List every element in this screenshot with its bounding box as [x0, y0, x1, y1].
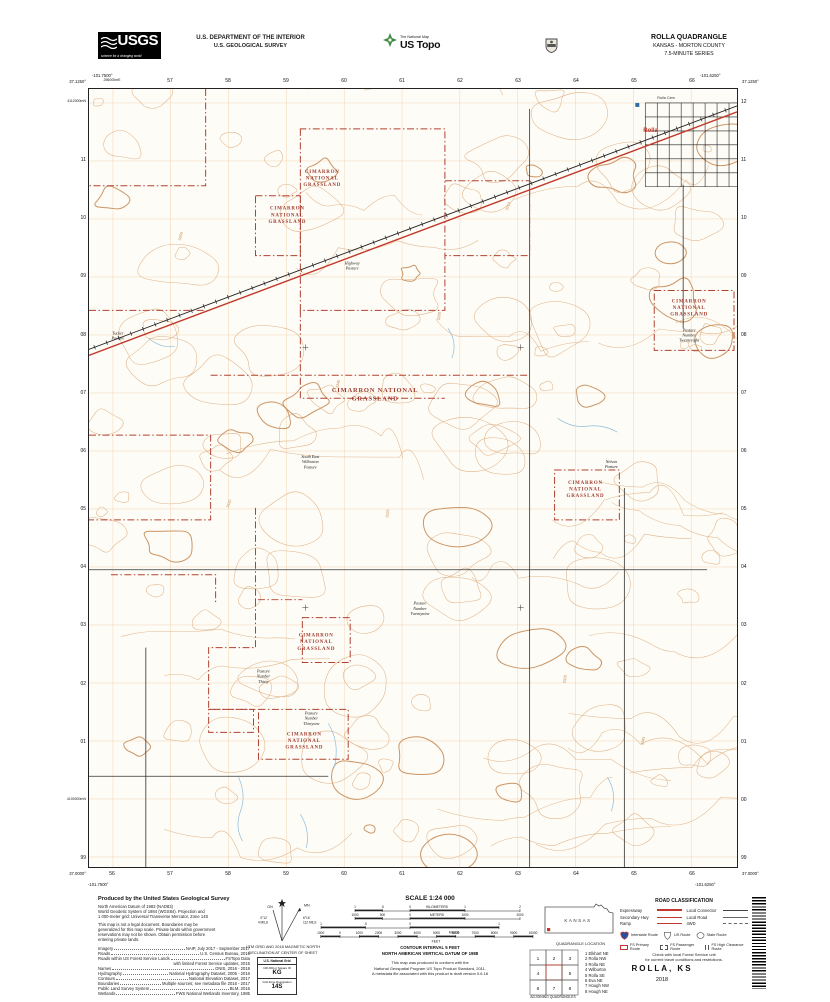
grid-label: 11	[56, 157, 86, 163]
legal-notes: This map is not a legal document. Bounda…	[98, 922, 250, 942]
note-line: entering private lands.	[98, 937, 250, 942]
scale-bar-kilometers: 1.5012KILOMETERS	[354, 905, 521, 912]
fs-primary-label: FS Primary Route	[630, 943, 655, 951]
contour-layer	[89, 89, 737, 867]
grid-label: 64	[561, 871, 591, 877]
usgs-logo-text: USGS	[117, 32, 158, 49]
road-line-sample	[723, 923, 748, 924]
grid-label: 58	[213, 871, 243, 877]
pasture-label: PastureNumberThirtyone	[303, 710, 319, 725]
vertical-datum-note: NORTH AMERICAN VERTICAL DATUM OF 1988	[310, 951, 550, 956]
gn-degrees: 0°12´	[260, 916, 268, 920]
gn-mils: 4 MILS	[258, 921, 268, 925]
svg-text:8000: 8000	[491, 931, 498, 935]
sheet-name: ROLLA, KS	[598, 964, 726, 973]
corner-coord-br-lat: 37.0000°	[742, 871, 759, 876]
contour-elevation-label: 3320	[563, 675, 568, 684]
svg-text:2000: 2000	[516, 913, 523, 917]
road-classification-legend: ROAD CLASSIFICATION ExpresswaySecondary …	[620, 898, 748, 963]
road-line-sample	[657, 909, 682, 911]
sheet-year: 2018	[598, 977, 726, 983]
grid-label: 03	[741, 622, 771, 628]
grid-label: 56	[97, 871, 127, 877]
usng-box: U.S. National Grid 100,000-m Square ID K…	[257, 957, 297, 995]
contour-elevation-label: 3335	[437, 312, 442, 321]
svg-text:3000: 3000	[394, 931, 401, 935]
grid-label: 99	[56, 855, 86, 861]
grid-label: 09	[56, 273, 86, 279]
dept-line2: U.S. GEOLOGICAL SURVEY	[168, 43, 333, 49]
grid-label: 07	[56, 390, 86, 396]
state-name: KANSAS	[564, 918, 591, 923]
scale-title: SCALE 1:24 000	[310, 895, 550, 902]
usng-square-id: KG	[258, 970, 296, 977]
quad-cell-number: 3	[569, 956, 572, 962]
conformance-note-1: This map was produced to conform with th…	[310, 960, 550, 965]
grid-label: 02	[56, 681, 86, 687]
pasture-label: HighwayPasture	[344, 261, 360, 271]
road-class-row: Expressway	[620, 907, 682, 914]
svg-text:10000: 10000	[529, 931, 538, 935]
conformance-note-2: National Geospatial Program US Topo Prod…	[310, 966, 550, 971]
ustopo-logo: The National Map US Topo	[383, 33, 440, 52]
corner-coord-bl-lon: -101.7500°	[88, 882, 109, 887]
fs-primary-icon	[620, 945, 628, 950]
grid-label: 10	[741, 215, 771, 221]
corner-coord-tl-lat: 37.1250°	[48, 79, 86, 84]
quadrangle-location-marker	[547, 928, 550, 931]
svg-text:.5: .5	[364, 922, 367, 926]
produced-by-title: Produced by the United States Geological…	[98, 896, 250, 902]
grid-label: 57	[155, 871, 185, 877]
usgs-tagline: science for a changing world	[101, 54, 141, 58]
contour-elevation-label: 3350	[178, 232, 184, 241]
contour-elevation-label: 3325	[385, 509, 390, 518]
svg-text:METERS: METERS	[430, 913, 445, 917]
quad-cell-number: 7	[553, 986, 556, 992]
quadrangle-location-caption: QUADRANGLE LOCATION	[533, 941, 628, 946]
fs-passenger-icon	[660, 945, 668, 950]
quad-cell-number: 2	[553, 956, 556, 962]
usgs-topo-sheet: USGS science for a changing world U.S. D…	[0, 0, 830, 1002]
place-label: Rolla Cem	[657, 96, 675, 100]
quad-cell-number: 5	[569, 971, 572, 977]
pasture-label: South EastWilburtonPasture	[301, 454, 320, 469]
topo-map: CIMARRONNATIONALGRASSLANDCIMARRONNATIONA…	[89, 89, 737, 867]
svg-text:4000: 4000	[414, 931, 421, 935]
grid-label: 65	[619, 78, 649, 84]
fs-high-clearance-icon	[705, 945, 710, 950]
usng-zone: 14S	[258, 984, 296, 991]
grid-label: 00	[741, 797, 771, 803]
grid-label: 01	[56, 739, 86, 745]
barcode	[752, 897, 766, 989]
svg-text:1: 1	[320, 922, 322, 926]
grassland-label: CIMARRONNATIONALGRASSLAND	[567, 481, 605, 499]
grid-label: 256000mE	[97, 78, 127, 82]
quad-cell-number: 8	[569, 986, 572, 992]
contour-interval-note: CONTOUR INTERVAL 5 FEET	[310, 945, 550, 950]
grid-label: 01	[741, 739, 771, 745]
road-class-row: Local Connector	[687, 907, 749, 914]
road-line-sample	[657, 917, 682, 918]
svg-text:2: 2	[519, 905, 521, 909]
grid-label: 07	[741, 390, 771, 396]
grassland-label: CIMARRONNATIONALGRASSLAND	[297, 634, 335, 652]
quad-cell-number: 1	[537, 956, 540, 962]
grid-label: 08	[741, 332, 771, 338]
usng-title: U.S. National Grid	[258, 958, 296, 965]
road-class-right-col: Local ConnectorLocal Road4WD	[687, 907, 749, 927]
datum-notes: North American Datum of 1983 (NAD83)Worl…	[98, 904, 250, 919]
grid-label: 66	[677, 78, 707, 84]
grid-label: 61	[387, 78, 417, 84]
grid-label: 63	[503, 78, 533, 84]
map-label-layer: CIMARRONNATIONALGRASSLANDCIMARRONNATIONA…	[110, 96, 708, 751]
grid-label: 59	[271, 78, 301, 84]
svg-text:1: 1	[354, 905, 356, 909]
grassland-boundary-layer	[89, 89, 734, 759]
svg-text:KILOMETERS: KILOMETERS	[426, 905, 449, 909]
pasture-label: TuckerPasture	[110, 330, 124, 340]
svg-text:5000: 5000	[433, 931, 440, 935]
grid-label: 05	[741, 506, 771, 512]
svg-text:0: 0	[409, 922, 411, 926]
scale-bar-feet: 1000010002000300040005000600070008000900…	[317, 931, 538, 944]
svg-text:0: 0	[339, 931, 341, 935]
road-layer	[89, 103, 737, 867]
state-locator-map: KANSAS	[543, 902, 617, 938]
grid-label: 61	[387, 871, 417, 877]
road-class-title: ROAD CLASSIFICATION	[620, 898, 748, 904]
grid-label: 05	[56, 506, 86, 512]
grid-label: 09	[741, 273, 771, 279]
road-class-row: Ramp	[620, 921, 682, 928]
conformance-note-3: A metadata file associated with this pro…	[310, 971, 550, 976]
quad-series: 7.5-MINUTE SERIES	[608, 51, 770, 57]
grid-label: 99	[741, 855, 771, 861]
grid-label: 65	[619, 871, 649, 877]
road-line-sample	[657, 923, 682, 924]
pasture-label: PastureNumberThirty	[256, 668, 271, 683]
grid-label: 62	[445, 871, 475, 877]
grid-label: 64	[561, 78, 591, 84]
svg-text:0: 0	[409, 905, 411, 909]
grid-label: 11	[741, 157, 771, 163]
true-north-star-icon	[278, 899, 286, 907]
contour-elevation-label: 3310	[505, 202, 512, 211]
road-class-left-col: ExpresswaySecondary HwyRamp	[620, 907, 682, 927]
adjoining-quad-grid: 12345678	[529, 949, 579, 996]
utm-grid-layer	[89, 89, 737, 867]
svg-text:1000: 1000	[461, 913, 468, 917]
corner-coord-tr-lat: 37.1250°	[742, 79, 759, 84]
grid-label: 06	[741, 448, 771, 454]
us-route-label: US Route	[674, 933, 690, 937]
grid-label: 4100000mN	[56, 797, 86, 801]
grid-label: 4112000mN	[56, 99, 86, 103]
grassland-label: CIMARRONNATIONALGRASSLAND	[268, 207, 306, 225]
svg-text:0: 0	[409, 913, 411, 917]
svg-text:1000: 1000	[351, 913, 358, 917]
grid-label: 60	[329, 871, 359, 877]
grid-label: 60	[329, 78, 359, 84]
svg-text:6000: 6000	[452, 931, 459, 935]
svg-text:.5: .5	[381, 905, 384, 909]
grid-label: 04	[741, 564, 771, 570]
interstate-route-label: Interstate Route	[631, 933, 658, 937]
dept-line1: U.S. DEPARTMENT OF THE INTERIOR	[168, 35, 333, 41]
svg-text:1000: 1000	[356, 931, 363, 935]
svg-text:2000: 2000	[375, 931, 382, 935]
road-class-row: Secondary Hwy	[620, 914, 682, 921]
grid-label: 62	[445, 78, 475, 84]
adjoining-quad-item: 8 Hough NE	[585, 989, 609, 994]
grid-label: 58	[213, 78, 243, 84]
svg-text:500: 500	[380, 913, 386, 917]
national-map-icon	[383, 33, 397, 52]
grid-label: 12	[741, 99, 771, 105]
interstate-shield-icon	[620, 931, 629, 940]
map-frame: CIMARRONNATIONALGRASSLANDCIMARRONNATIONA…	[88, 88, 738, 868]
pasture-label: NelsonPasture	[604, 459, 618, 469]
interior-shield-icon	[545, 38, 558, 58]
quadrangle-title-block: ROLLA QUADRANGLE KANSAS - MORTON COUNTY …	[608, 34, 770, 57]
fs-passenger-label: FS Passenger Route	[670, 943, 700, 951]
grid-label: 03	[56, 622, 86, 628]
fs-high-clearance-label: FS High Clearance Route	[711, 943, 748, 951]
road-class-row: Local Road	[687, 914, 749, 921]
quad-title: ROLLA QUADRANGLE	[608, 34, 770, 41]
svg-text:7000: 7000	[472, 931, 479, 935]
usgs-logo: USGS science for a changing world	[98, 32, 161, 59]
forest-service-note-2: for current travel conditions and restri…	[620, 958, 748, 963]
place-label: Rolla	[643, 128, 658, 134]
scale-bars: 1.5012KILOMETERS1000500010002000METERS1.…	[305, 904, 555, 944]
grid-label: 02	[741, 681, 771, 687]
railroad-highway-layer	[89, 106, 737, 355]
grid-label: 04	[56, 564, 86, 570]
department-heading: U.S. DEPARTMENT OF THE INTERIOR U.S. GEO…	[168, 35, 333, 49]
quad-cell-number: 4	[537, 971, 540, 977]
road-line-sample	[723, 910, 748, 911]
stream-layer	[149, 328, 618, 848]
sheet-title-block: ROLLA, KS 2018	[598, 964, 726, 983]
svg-text:FEET: FEET	[432, 940, 441, 944]
grid-label: 08	[56, 332, 86, 338]
quad-cell-center	[546, 965, 562, 980]
grassland-label: CIMARRONNATIONALGRASSLAND	[303, 170, 341, 188]
svg-text:1000: 1000	[317, 931, 324, 935]
grid-label: 59	[271, 871, 301, 877]
svg-text:9000: 9000	[510, 931, 517, 935]
quad-cell-number: 6	[537, 986, 540, 992]
adjoining-quads-caption: ADJOINING QUADRANGLES	[509, 995, 597, 999]
state-route-icon	[696, 931, 705, 940]
grid-north-label: GN	[267, 905, 273, 909]
corner-coord-br-lon: -101.6250°	[695, 882, 716, 887]
road-class-row: 4WD	[687, 921, 749, 928]
grassland-label: CIMARRONNATIONALGRASSLAND	[285, 732, 323, 750]
note-line: 1 000-meter grid: Universal Transverse M…	[98, 914, 250, 919]
road-line-sample	[723, 917, 748, 918]
contour-elevation-label: 3330	[226, 499, 233, 508]
state-route-label: State Route	[707, 933, 727, 937]
contour-elevation-label: 3345	[640, 736, 646, 745]
usgs-wave-icon	[101, 36, 117, 54]
source-row: WetlandsFWS National Wetlands Inventory,…	[98, 991, 250, 996]
grid-label: 63	[503, 871, 533, 877]
ustopo-name: US Topo	[400, 39, 440, 51]
us-route-shield-icon	[663, 931, 672, 940]
corner-coord-bl-lat: 37.0000°	[48, 871, 86, 876]
svg-text:1: 1	[464, 905, 466, 909]
grid-label: 57	[155, 78, 185, 84]
scale-bar-meters: 1000500010002000METERS	[351, 913, 523, 920]
grid-label: 06	[56, 448, 86, 454]
grassland-label: CIMARRONNATIONALGRASSLAND	[670, 299, 708, 317]
quad-state: KANSAS - MORTON COUNTY	[608, 43, 770, 49]
grid-label: 66	[677, 871, 707, 877]
svg-text:1: 1	[498, 922, 500, 926]
grid-label: 10	[56, 215, 86, 221]
